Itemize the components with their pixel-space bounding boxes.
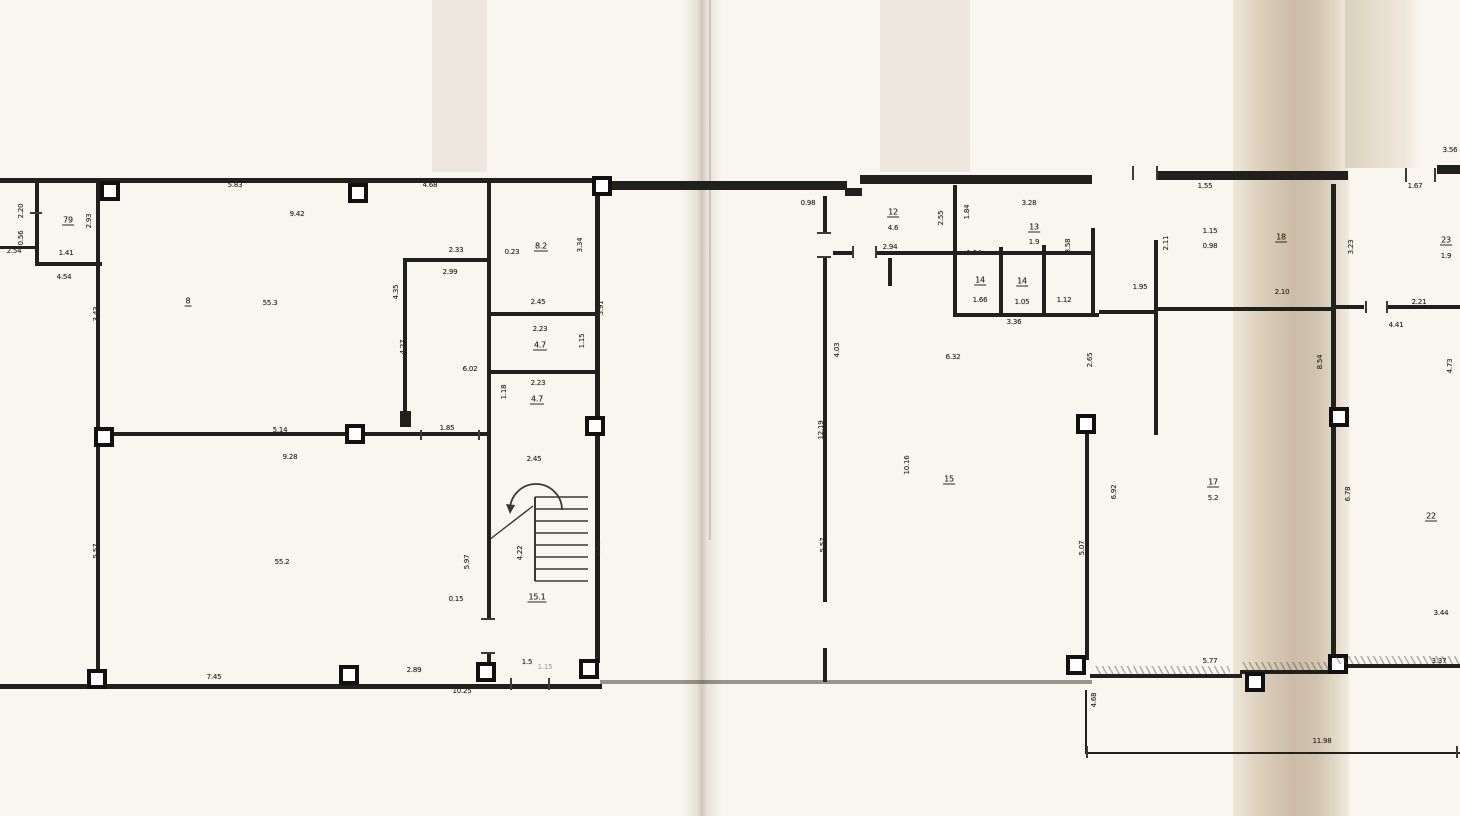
wall-segment	[1091, 228, 1095, 315]
door-tick	[481, 618, 495, 620]
dimension-label: 5.2	[1208, 494, 1219, 502]
room-area-label: 17	[1207, 479, 1219, 488]
dimension-label: 0.98	[801, 199, 816, 207]
wall-hatch	[1242, 662, 1332, 670]
dimension-label: 1.9	[1441, 252, 1452, 260]
room-area-label: 12	[887, 209, 899, 218]
dimension-label: 2.55	[937, 211, 945, 226]
dimension-label: 4.22	[516, 546, 524, 561]
dimension-label: 5.91	[597, 301, 605, 316]
column	[100, 181, 120, 201]
door-tick	[420, 430, 422, 440]
wall-segment	[1085, 690, 1087, 754]
dimension-label: 1.05	[1015, 298, 1030, 306]
column	[345, 424, 365, 444]
dimension-label: 5.14	[273, 426, 288, 434]
dimension-label: 0.15	[449, 595, 464, 603]
wall-segment	[487, 370, 600, 374]
dimension-label: 3.34	[576, 238, 584, 253]
room-area-label: 4.7	[533, 342, 547, 351]
door-tick	[875, 246, 877, 258]
dimension-label: 1.15	[538, 663, 553, 671]
dimension-label: 6.32	[946, 353, 961, 361]
dimension-label: 11.98	[1312, 737, 1331, 745]
wall-segment	[1042, 245, 1046, 315]
room-area-label: 8	[185, 298, 192, 307]
scanned-floorplan-page: 2.200.562.54791.414.542.935.839.42855.33…	[0, 0, 1460, 816]
dimension-label: 4.68	[1090, 693, 1098, 708]
door-tick	[478, 430, 480, 440]
dimension-label: 10.25	[452, 687, 471, 695]
dimension-label: 2.23	[531, 379, 546, 387]
column	[1329, 407, 1349, 427]
staircase	[480, 440, 610, 690]
dimension-label: 3.44	[1434, 609, 1449, 617]
door-tick	[1156, 166, 1158, 180]
dimension-label: 2.54	[7, 247, 22, 255]
dimension-label: 9.42	[290, 210, 305, 218]
wall-segment	[833, 251, 852, 255]
dimension-label: 1.15	[1203, 227, 1218, 235]
dimension-label: 5.57	[819, 538, 827, 553]
dimension-label: 2.89	[407, 666, 422, 674]
room-area-label: 4.7	[530, 396, 544, 405]
dimension-label: 1.85	[440, 424, 455, 432]
wall-pier	[400, 411, 411, 427]
wall-segment	[597, 181, 847, 190]
column	[1245, 672, 1265, 692]
wall-segment	[0, 178, 600, 183]
dimension-label: 3.28	[1022, 199, 1037, 207]
column	[94, 427, 114, 447]
dimension-label: 2.99	[443, 268, 458, 276]
dimension-label: 2.65	[1086, 353, 1094, 368]
wall-segment	[1437, 165, 1460, 174]
dimension-label: 2.45	[527, 455, 542, 463]
room-area-label: 15.1	[527, 594, 546, 603]
wall-segment	[953, 313, 1099, 317]
room-area-label: 22	[1425, 513, 1437, 522]
dimension-label: 2.11	[1162, 236, 1170, 251]
room-area-label: 79	[62, 217, 74, 226]
room-area-label: 13	[1028, 224, 1040, 233]
wall-segment	[403, 258, 407, 418]
door-tick	[817, 256, 831, 258]
wall-segment	[96, 432, 489, 436]
dimension-label: 3.62	[594, 542, 602, 557]
column	[592, 176, 612, 196]
dimension-label: 3.58	[1064, 239, 1072, 254]
dimension-label: 0.56	[17, 231, 25, 246]
wall-segment	[1099, 310, 1156, 314]
dimension-label: 5.77	[1203, 657, 1218, 665]
wall-segment	[877, 251, 1095, 255]
dimension-label: 2.94	[883, 243, 898, 251]
door-tick	[817, 232, 831, 234]
door-tick	[852, 246, 854, 258]
room-area-label: 14	[1016, 278, 1028, 287]
dimension-label: 1.41	[59, 249, 74, 257]
dimension-label: 1.15	[578, 334, 586, 349]
wall-segment	[1331, 427, 1336, 657]
door-tick	[1434, 168, 1436, 182]
dimension-label: 55.3	[263, 299, 278, 307]
dimension-label: 0.98	[1203, 242, 1218, 250]
column	[585, 416, 605, 436]
dimension-label: 1.67	[1408, 182, 1423, 190]
dimension-label: 5.57	[92, 544, 100, 559]
wall-segment	[1090, 674, 1242, 678]
column	[476, 662, 496, 682]
dimension-label: 3.56	[1443, 146, 1458, 154]
door-tick	[1132, 166, 1134, 180]
dimension-label: 3.23	[1347, 240, 1355, 255]
dimension-label: 4.27	[399, 340, 407, 355]
dimension-label: 4.68	[423, 181, 438, 189]
dimension-label: 4.35	[392, 285, 400, 300]
column	[348, 183, 368, 203]
door-tick	[481, 652, 495, 654]
room-area-label: 23	[1440, 237, 1452, 246]
door-tick	[1365, 301, 1367, 313]
dimension-label: 12.19	[817, 420, 825, 439]
dimension-label: 5.97	[463, 555, 471, 570]
dimension-label: 1.12	[1057, 296, 1072, 304]
column	[1076, 414, 1096, 434]
wall-segment	[35, 262, 102, 266]
wall-segment	[35, 180, 39, 266]
dimension-label: 2.20	[17, 204, 25, 219]
door-tick	[30, 212, 42, 214]
column	[579, 659, 599, 679]
dimension-label: 4.41	[1389, 321, 1404, 329]
wall-segment	[487, 312, 600, 316]
room-area-label: 8.2	[534, 243, 548, 252]
wall-segment	[888, 258, 892, 286]
door-tick	[1405, 168, 1407, 182]
dimension-label: 6.92	[1110, 485, 1118, 500]
wall-segment	[999, 247, 1003, 315]
dimension-label: 0.23	[505, 248, 520, 256]
dimension-label: 4.03	[833, 343, 841, 358]
wall-segment	[1154, 307, 1336, 311]
dimension-label: 1.9	[1029, 238, 1040, 246]
dimension-label: 2.21	[1412, 298, 1427, 306]
dimension-label: 6.02	[463, 365, 478, 373]
dimension-label: 9.28	[283, 453, 298, 461]
room-area-label: 15	[943, 476, 955, 485]
wall-segment	[403, 258, 491, 262]
dimension-label: 5.83	[228, 181, 243, 189]
dimension-label: 10.16	[903, 455, 911, 474]
wall-hatch	[1095, 666, 1230, 674]
dimension-label: 55.2	[275, 558, 290, 566]
dimension-label: 2.10	[1275, 288, 1290, 296]
column	[87, 669, 107, 689]
dimension-label: 2.33	[449, 246, 464, 254]
room-area-label: 14	[974, 277, 986, 286]
dimension-label: 3.36	[1007, 318, 1022, 326]
wall-segment	[1154, 240, 1158, 435]
dimension-label: 2.93	[85, 214, 93, 229]
door-tick	[1086, 746, 1088, 758]
wall-segment	[953, 185, 957, 315]
floorplan-drawing: 2.200.562.54791.414.542.935.839.42855.33…	[0, 0, 1460, 816]
dimension-label: 1.66	[973, 296, 988, 304]
room-area-label: 18	[1275, 234, 1287, 243]
wall-segment	[1336, 305, 1364, 309]
dimension-label: 4.6	[888, 224, 899, 232]
wall-segment	[1158, 171, 1348, 180]
column	[1066, 655, 1086, 675]
dimension-label: 8.54	[1316, 355, 1324, 370]
column	[339, 665, 359, 685]
dimension-label: 3.43	[92, 307, 100, 322]
dimension-label: 7.45	[207, 673, 222, 681]
dimension-label: 2.45	[531, 298, 546, 306]
dimension-label: 1.54	[967, 249, 982, 257]
door-tick	[548, 678, 550, 690]
dimension-label: 1.95	[1133, 283, 1148, 291]
dimension-label: 1.5	[522, 658, 533, 666]
dimension-label: 4.54	[57, 273, 72, 281]
wall-segment	[600, 680, 1092, 684]
door-tick	[510, 678, 512, 690]
dimension-label: 1.84	[963, 205, 971, 220]
dimension-label: 4.73	[1446, 359, 1454, 374]
dimension-label: 1.55	[1198, 182, 1213, 190]
wall-segment	[487, 182, 491, 618]
dimension-label: 3.37	[1432, 657, 1447, 665]
dimension-label: 5.07	[1078, 541, 1086, 556]
wall-segment	[860, 175, 1092, 184]
wall-segment	[1331, 184, 1336, 410]
wall-segment	[823, 648, 827, 682]
dimension-label: 6.78	[1344, 487, 1352, 502]
dimension-label: 2.23	[533, 325, 548, 333]
door-tick	[1386, 301, 1388, 313]
wall-segment	[845, 188, 862, 196]
wall-segment	[1085, 752, 1460, 754]
dimension-label: 1.18	[500, 385, 508, 400]
door-tick	[1456, 746, 1458, 758]
wall-segment	[823, 196, 827, 232]
